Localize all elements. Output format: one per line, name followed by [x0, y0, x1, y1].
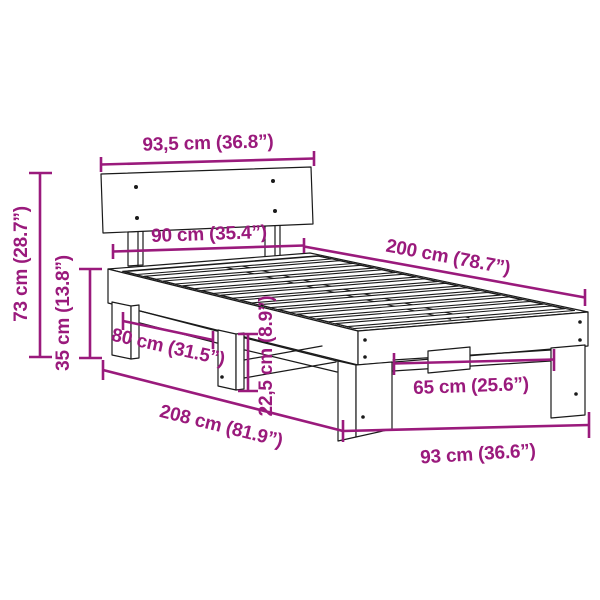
dim-label-mattress-width: 90 cm (35.4”): [151, 222, 267, 248]
leg-foot-far: [551, 345, 585, 418]
dim-label-foot-leg-spacing: 65 cm (25.6”): [413, 374, 529, 400]
screw-dot: [135, 216, 139, 220]
headboard-post-left: [128, 231, 143, 266]
dimension-frame-height: [79, 269, 102, 358]
dim-label-under-bed-clearance: 22,5 cm (8.9”): [256, 296, 278, 417]
screw-dot: [271, 179, 275, 183]
dim-label-headboard-width: 93,5 cm (36.8”): [142, 131, 274, 156]
screw-dot: [134, 185, 138, 189]
headboard-post-right: [265, 225, 280, 257]
bed-frame-drawing: [0, 0, 600, 600]
dim-label-frame-height: 35 cm (13.8”): [53, 255, 75, 371]
center-beam-end: [428, 347, 470, 373]
screw-dot: [273, 209, 277, 213]
dim-label-total-height: 73 cm (28.7”): [11, 206, 33, 322]
dimension-diagram: 93,5 cm (36.8”) 73 cm (28.7”) 35 cm (13.…: [0, 0, 600, 600]
